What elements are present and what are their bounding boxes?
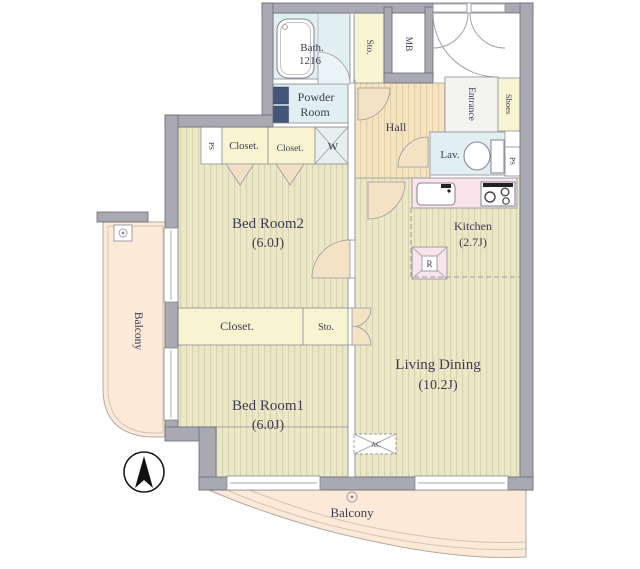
compass-north-arrow <box>124 452 164 492</box>
vanity-basin-icon <box>274 87 289 104</box>
toilet-tank-icon <box>491 140 504 173</box>
partition <box>273 123 348 127</box>
floor-plan: Bath. 1216 Sto. MB Entrance Shoes Powder… <box>0 0 640 569</box>
powder-room-label-2: Room <box>300 105 330 119</box>
lavatory-label: Lav. <box>440 149 459 161</box>
bedroom2-label: Bed Room2 <box>232 216 304 232</box>
kitchen-size-label: (2.7J) <box>459 235 487 249</box>
faucet-icon <box>441 184 451 188</box>
entrance-door-arc-main <box>433 13 497 77</box>
ac-label: AC <box>371 441 381 449</box>
room-bedroom1 <box>178 345 348 427</box>
wall-segment <box>520 3 533 490</box>
living-size-label: (10.2J) <box>418 378 458 393</box>
closet-mid-label: Closet. <box>220 319 254 333</box>
closet-top-left-label: Closet. <box>229 141 258 152</box>
entrance-label: Entrance <box>466 87 476 121</box>
wall-segment <box>384 73 433 83</box>
closet-top-right-label: Closet. <box>277 144 304 154</box>
vanity-cabinet-icon <box>274 106 289 123</box>
entrance-door-arc-1 <box>433 13 468 48</box>
bath-label: Bath. <box>300 42 324 54</box>
wall-segment <box>425 7 433 79</box>
fridge-label: R <box>426 259 432 269</box>
partition <box>348 345 355 477</box>
balcony-bottom-label: Balcony <box>330 505 374 520</box>
balcony-left <box>97 212 167 437</box>
kitchen-label: Kitchen <box>454 219 492 233</box>
entrance-door-leaf-1 <box>433 4 467 12</box>
hall-label: Hall <box>386 120 407 134</box>
balcony-bottom-deck <box>209 490 526 558</box>
bedroom2-size-label: (6.0J) <box>252 236 285 251</box>
storage-top-label: Sto. <box>364 39 374 54</box>
wall-segment <box>165 115 273 127</box>
bedroom1-size-label: (6.0J) <box>252 418 285 433</box>
wall-segment <box>262 3 273 127</box>
faucet-dot <box>447 189 450 192</box>
partition <box>348 278 355 308</box>
stove-panel <box>483 183 513 187</box>
washer-label: W <box>328 141 339 153</box>
shoes-label: Shoes <box>504 94 514 114</box>
powder-room-label-1: Powder <box>298 90 335 104</box>
toilet-bowl-icon <box>464 142 490 170</box>
wall-segment <box>384 7 392 79</box>
balcony-left-label: Balcony <box>132 312 144 351</box>
partition <box>273 79 318 84</box>
wall-segment <box>97 212 148 222</box>
entrance-door-arc-2 <box>470 13 505 48</box>
floor-plan-drawing: Bath. 1216 Sto. MB Entrance Shoes Powder… <box>0 0 640 569</box>
living-label: Living Dining <box>395 357 481 373</box>
room-bedroom1-lower <box>216 427 348 477</box>
storage-mid-label: Sto. <box>318 322 334 333</box>
entrance-door-leaf-2 <box>471 4 505 12</box>
bath-size-label: 1216 <box>299 55 322 67</box>
pipe-space-left-label: PS <box>207 142 215 150</box>
room-living-dining <box>355 178 520 477</box>
bedroom1-label: Bed Room1 <box>232 398 304 414</box>
balcony-drain-dot-2 <box>351 496 354 499</box>
pipe-space-right-label: PS <box>508 157 516 165</box>
partition <box>350 13 354 83</box>
meter-box-label: MB <box>403 37 413 52</box>
balcony-drain-dot <box>122 232 125 235</box>
partition <box>348 80 355 240</box>
